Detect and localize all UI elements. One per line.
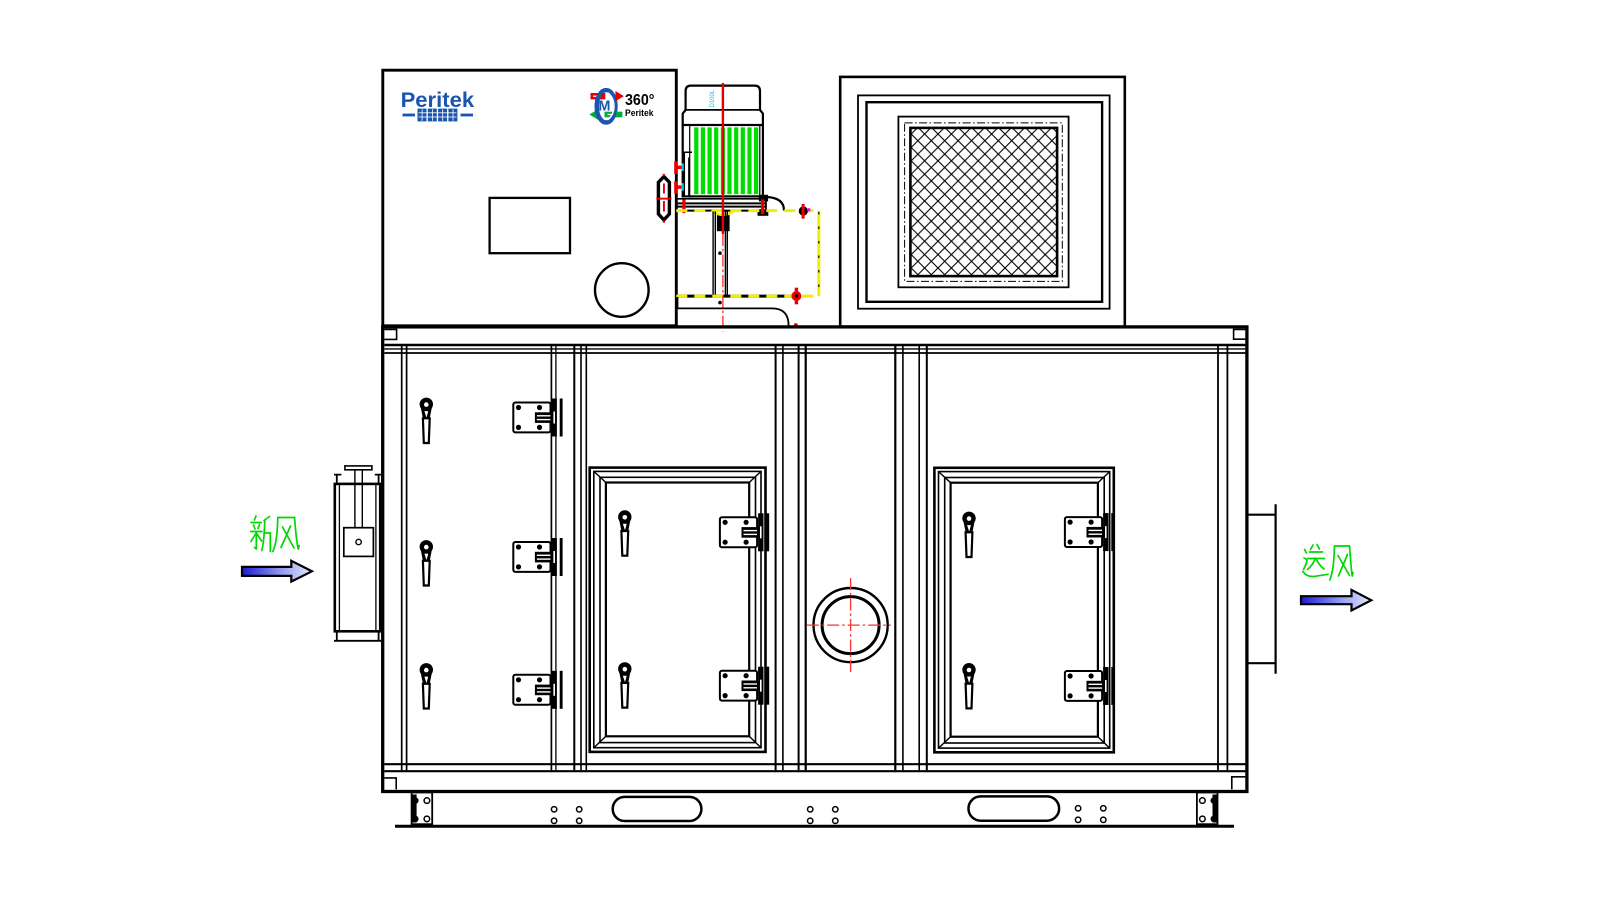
svg-text:360°: 360° (625, 92, 655, 109)
svg-text:M: M (598, 98, 610, 114)
svg-text:Peritek: Peritek (625, 108, 654, 118)
svg-text:Peritek: Peritek (401, 88, 475, 112)
svg-text:D100L: D100L (710, 89, 716, 107)
